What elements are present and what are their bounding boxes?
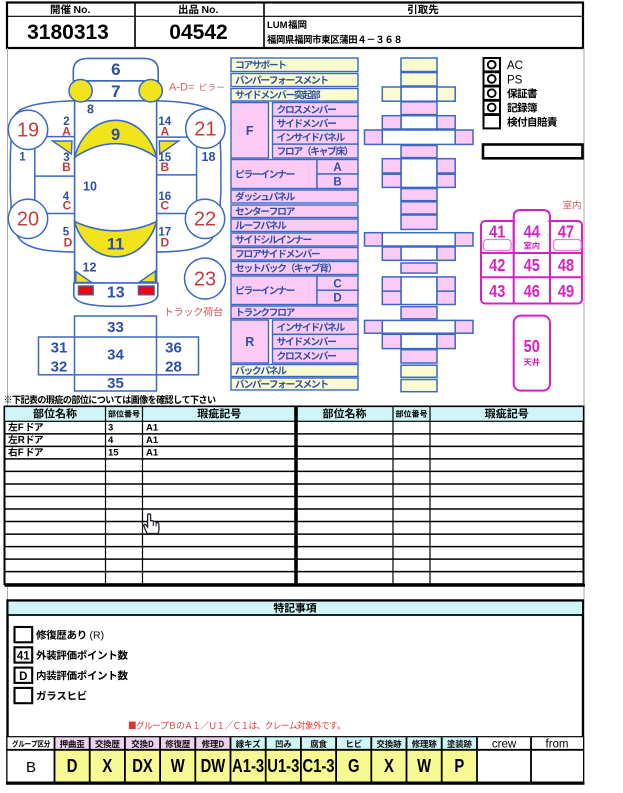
- svg-text:1: 1: [19, 152, 26, 164]
- svg-text:22: 22: [194, 209, 216, 231]
- svg-text:3: 3: [108, 423, 113, 434]
- svg-text:AC: AC: [507, 60, 523, 72]
- svg-text:12: 12: [83, 261, 97, 275]
- svg-text:7: 7: [111, 82, 120, 101]
- svg-text:20: 20: [17, 209, 39, 231]
- svg-text:11: 11: [107, 236, 124, 254]
- svg-text:4: 4: [108, 435, 114, 446]
- svg-text:48: 48: [558, 256, 574, 276]
- svg-text:from: from: [546, 738, 569, 750]
- svg-text:DW: DW: [201, 755, 226, 776]
- svg-text:C1-3: C1-3: [302, 755, 334, 776]
- svg-text:50: 50: [524, 337, 540, 357]
- svg-text:D: D: [19, 671, 27, 683]
- svg-text:LUM: LUM: [267, 20, 288, 31]
- svg-text:19: 19: [17, 120, 39, 142]
- svg-text:A: A: [333, 162, 341, 174]
- svg-text:B: B: [26, 759, 36, 776]
- svg-text:X: X: [102, 755, 113, 776]
- svg-text:crew: crew: [492, 738, 517, 750]
- svg-text:D: D: [160, 236, 169, 250]
- svg-text:A1: A1: [146, 448, 159, 459]
- svg-text:45: 45: [524, 256, 540, 276]
- svg-text:F: F: [246, 124, 254, 138]
- svg-text:R: R: [18, 435, 25, 446]
- svg-text:B: B: [62, 160, 71, 174]
- svg-text:W: W: [417, 755, 431, 776]
- svg-text:36: 36: [165, 340, 182, 357]
- svg-text:C: C: [63, 199, 72, 213]
- svg-text:X: X: [384, 755, 395, 776]
- svg-text:41: 41: [17, 651, 30, 663]
- svg-text:DX: DX: [132, 755, 153, 776]
- svg-text:W: W: [171, 755, 185, 776]
- svg-text:A-D=: A-D=: [169, 82, 194, 94]
- svg-text:A1-3: A1-3: [232, 755, 264, 776]
- svg-text:F: F: [18, 448, 24, 459]
- svg-text:D: D: [67, 755, 78, 776]
- svg-text:34: 34: [107, 347, 124, 364]
- svg-text:15: 15: [108, 448, 119, 459]
- svg-text:F: F: [18, 423, 24, 434]
- svg-text:49: 49: [558, 282, 574, 302]
- svg-text:No.: No.: [202, 4, 219, 16]
- svg-text:44: 44: [524, 222, 540, 242]
- svg-text:8: 8: [87, 103, 94, 117]
- svg-text:6: 6: [111, 60, 120, 79]
- svg-text:3180313: 3180313: [27, 21, 109, 44]
- svg-text:13: 13: [107, 285, 125, 302]
- svg-text:No.: No.: [74, 4, 91, 16]
- svg-text:A1: A1: [146, 423, 159, 434]
- svg-text:R: R: [245, 335, 254, 349]
- svg-text:U1-3: U1-3: [267, 755, 299, 776]
- svg-text:23: 23: [194, 269, 216, 291]
- svg-text:28: 28: [165, 359, 182, 376]
- svg-text:43: 43: [489, 282, 505, 302]
- svg-text:C: C: [160, 199, 169, 213]
- svg-text:31: 31: [51, 340, 68, 357]
- svg-text:21: 21: [194, 119, 216, 141]
- svg-text:B: B: [160, 160, 169, 174]
- svg-text:A: A: [160, 125, 169, 139]
- svg-text:P: P: [454, 755, 464, 776]
- svg-text:32: 32: [51, 359, 68, 376]
- svg-text:18: 18: [202, 150, 216, 164]
- svg-text:G: G: [348, 755, 360, 776]
- svg-text:D: D: [333, 293, 341, 305]
- svg-text:(R): (R): [90, 630, 105, 642]
- svg-text:04542: 04542: [169, 21, 227, 44]
- svg-text:PS: PS: [507, 74, 523, 86]
- svg-text:10: 10: [83, 180, 97, 194]
- svg-text:A1: A1: [146, 435, 159, 446]
- svg-text:B: B: [333, 176, 341, 188]
- svg-text:46: 46: [524, 282, 540, 302]
- svg-text:9: 9: [111, 126, 120, 144]
- svg-text:D: D: [64, 236, 73, 250]
- svg-text:35: 35: [107, 375, 124, 392]
- svg-text:42: 42: [489, 256, 505, 276]
- svg-text:33: 33: [107, 319, 124, 336]
- svg-text:A: A: [62, 125, 71, 139]
- svg-text:C: C: [333, 278, 341, 290]
